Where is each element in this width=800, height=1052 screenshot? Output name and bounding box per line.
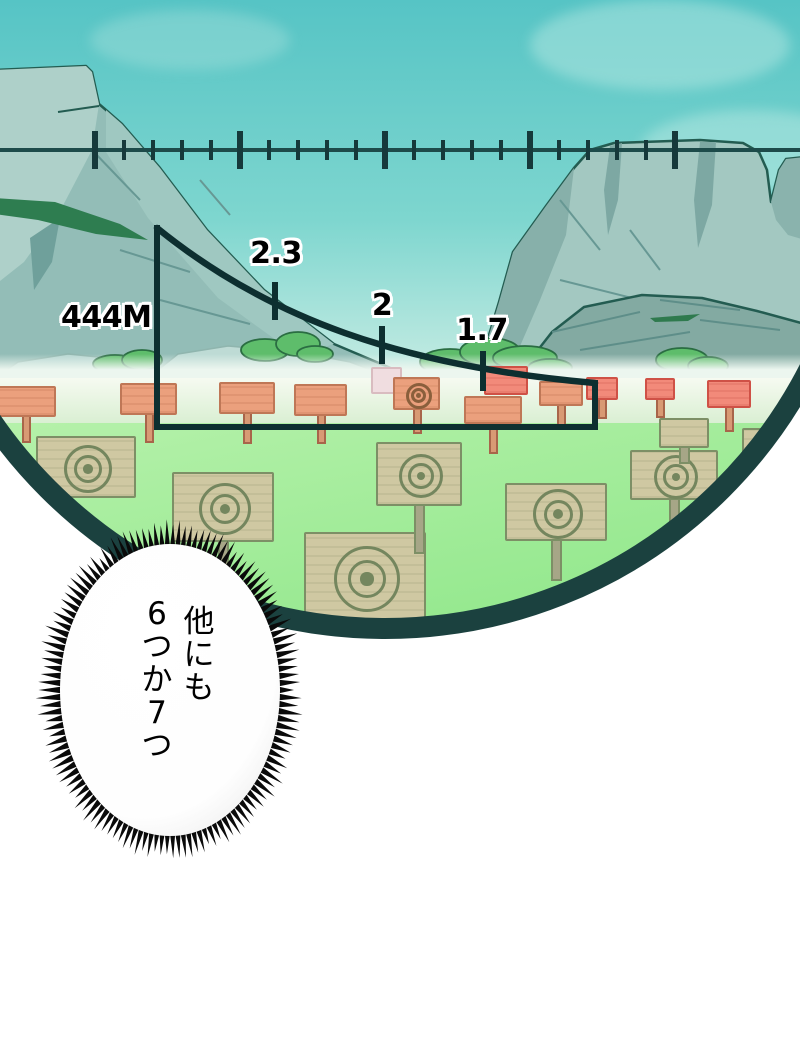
range-bracket <box>157 228 595 427</box>
drop-tick-label: 2 <box>372 288 392 323</box>
speech-line: 6つか7つ <box>140 598 174 763</box>
drop-tick-label: 1.7 <box>456 313 508 348</box>
speech-char: に <box>182 639 216 672</box>
speech-char: つ <box>140 631 174 664</box>
speech-char: か <box>140 664 174 697</box>
speech-char: 他 <box>182 606 216 639</box>
bullseye-ring <box>755 435 795 475</box>
bullseye-dot <box>360 572 373 585</box>
speech-char: 7 <box>140 697 174 730</box>
bullseye-dot <box>771 451 779 459</box>
field-target <box>304 532 426 622</box>
speech-char: も <box>182 672 216 705</box>
drop-tick <box>379 326 385 364</box>
drop-tick-label: 2.3 <box>250 236 302 271</box>
comic-panel: 444M 2.321.7 他にも6つか7つ <box>0 0 800 1052</box>
speech-line: 他にも <box>182 606 216 763</box>
speech-text: 他にも6つか7つ <box>112 598 244 763</box>
drop-tick <box>272 282 278 320</box>
drop-tick <box>480 351 486 391</box>
target-post <box>768 476 779 498</box>
range-label: 444M <box>61 300 151 335</box>
speech-char: つ <box>140 730 174 763</box>
range-annotations <box>0 0 800 520</box>
target-post <box>551 539 562 581</box>
bullseye-ring <box>763 443 786 466</box>
speech-char: 6 <box>140 598 174 631</box>
